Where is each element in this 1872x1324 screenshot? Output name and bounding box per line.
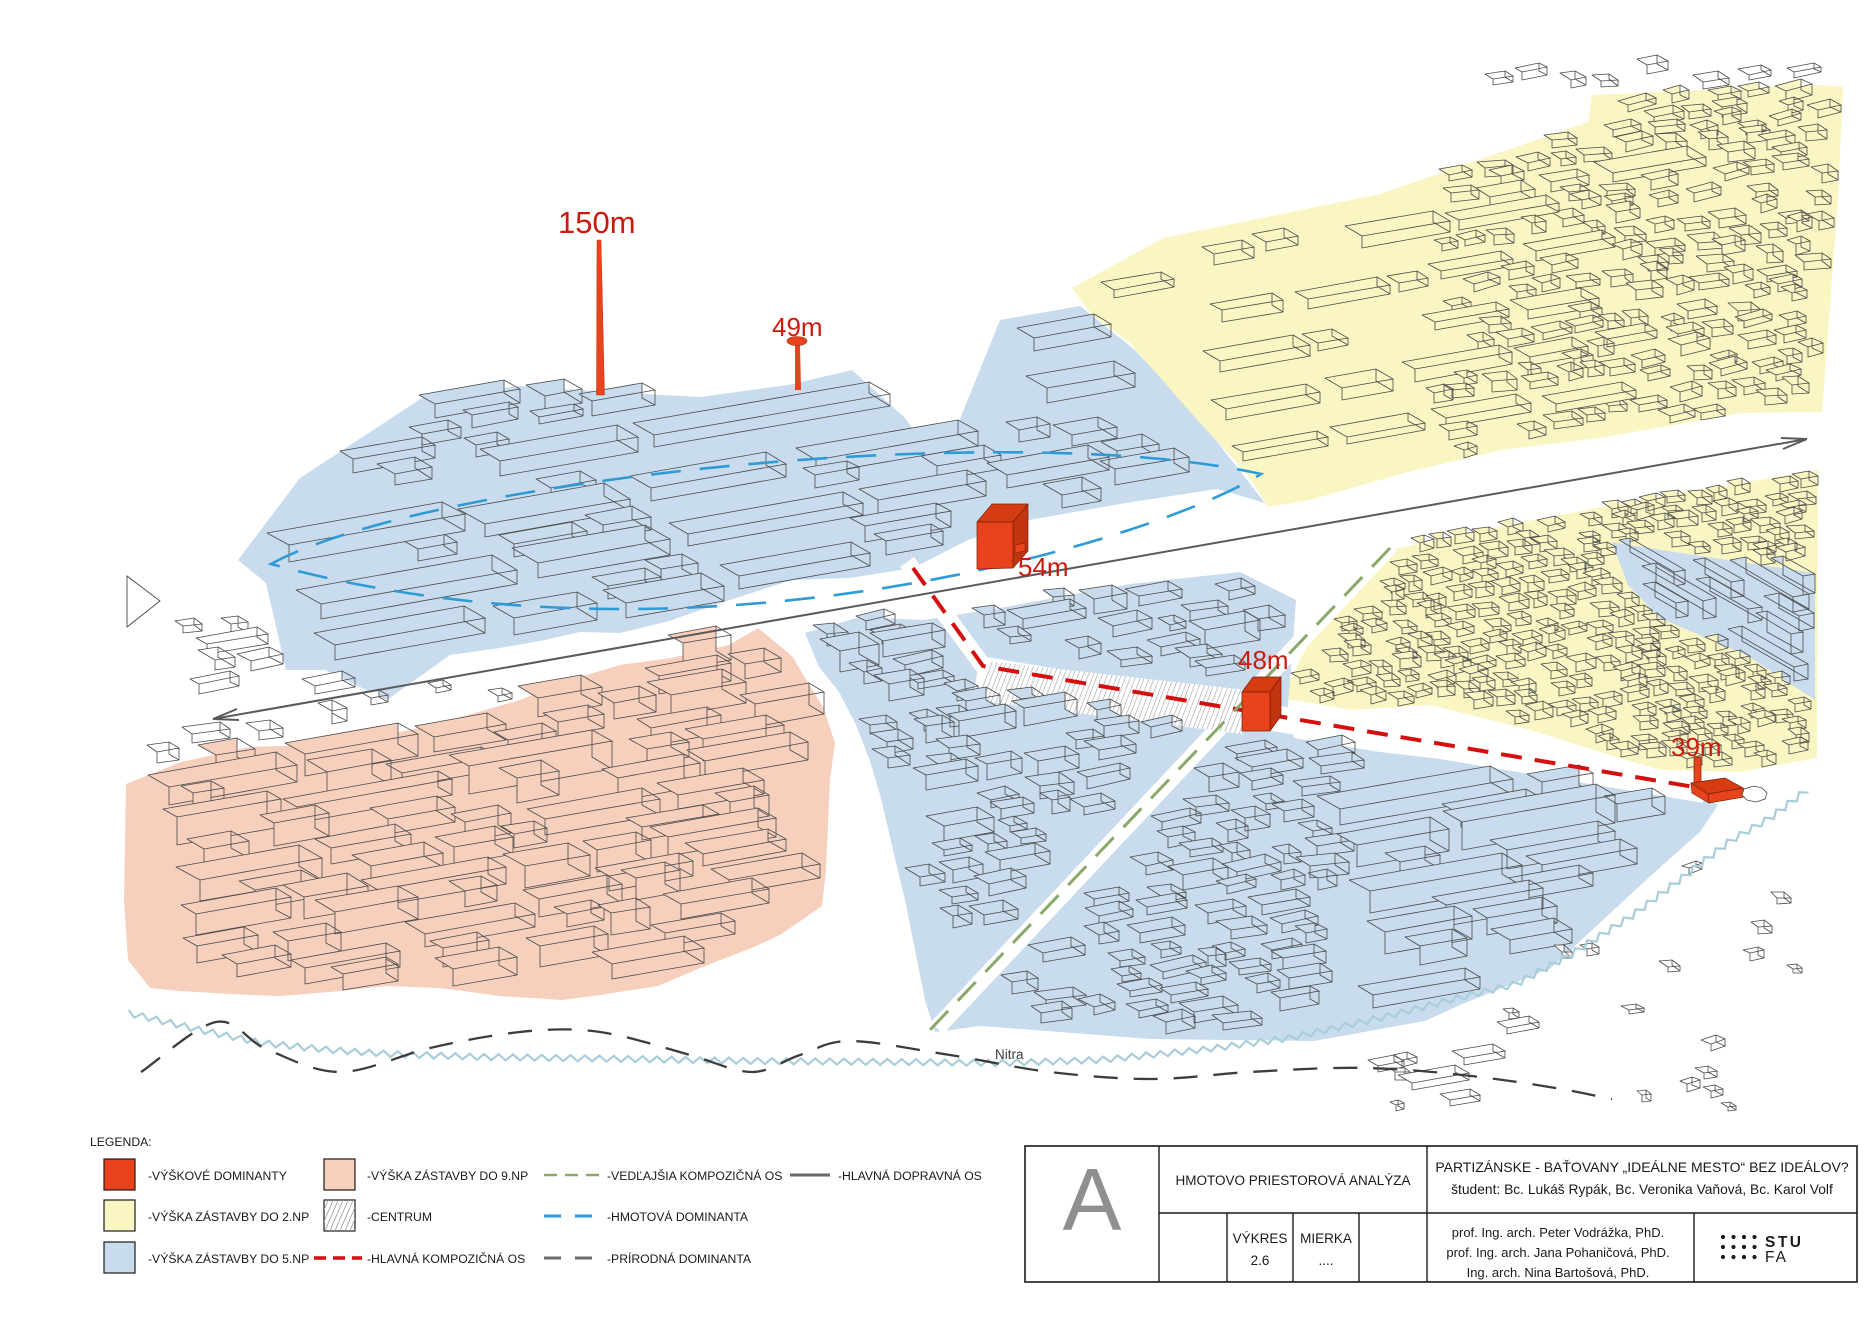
svg-text:-HLAVNÁ DOPRAVNÁ OS: -HLAVNÁ DOPRAVNÁ OS: [838, 1168, 982, 1183]
svg-text:prof. Ing. arch. Jana Pohaničo: prof. Ing. arch. Jana Pohaničová, PhD.: [1446, 1245, 1669, 1260]
svg-text:študent: Bc. Lukáš Rypák, Bc.: študent: Bc. Lukáš Rypák, Bc. Veronika V…: [1451, 1182, 1833, 1197]
svg-text:Ing. arch. Nina Bartošová, PhD: Ing. arch. Nina Bartošová, PhD.: [1467, 1265, 1650, 1280]
svg-text:....: ....: [1318, 1253, 1333, 1268]
svg-text:MIERKA: MIERKA: [1300, 1231, 1352, 1246]
svg-text:-VÝŠKA ZÁSTAVBY DO 5.NP: -VÝŠKA ZÁSTAVBY DO 5.NP: [148, 1251, 309, 1266]
svg-text:VÝKRES: VÝKRES: [1233, 1231, 1288, 1246]
svg-text:-VEDĽAJŠIA KOMPOZIČNÁ OS: -VEDĽAJŠIA KOMPOZIČNÁ OS: [607, 1168, 782, 1183]
svg-text:-CENTRUM: -CENTRUM: [367, 1210, 432, 1224]
svg-text:Nitra: Nitra: [995, 1047, 1024, 1062]
svg-text:2.6: 2.6: [1251, 1253, 1270, 1268]
svg-text:49m: 49m: [772, 312, 823, 342]
svg-text:HMOTOVO PRIESTOROVÁ ANALÝZA: HMOTOVO PRIESTOROVÁ ANALÝZA: [1175, 1173, 1410, 1188]
svg-text:LEGENDA:: LEGENDA:: [90, 1135, 152, 1149]
svg-text:prof. Ing. arch. Peter Vodrážk: prof. Ing. arch. Peter Vodrážka, PhD.: [1452, 1225, 1664, 1240]
svg-text:-VÝŠKA ZÁSTAVBY DO 9.NP: -VÝŠKA ZÁSTAVBY DO 9.NP: [367, 1168, 528, 1183]
svg-text:-HLAVNÁ KOMPOZIČNÁ OS: -HLAVNÁ KOMPOZIČNÁ OS: [367, 1251, 525, 1266]
svg-text:-VÝŠKA ZÁSTAVBY DO 2.NP: -VÝŠKA ZÁSTAVBY DO 2.NP: [148, 1209, 309, 1224]
svg-text:-PRÍRODNÁ DOMINANTA: -PRÍRODNÁ DOMINANTA: [607, 1251, 752, 1266]
svg-text:48m: 48m: [1238, 645, 1289, 675]
svg-text:-HMOTOVÁ DOMINANTA: -HMOTOVÁ DOMINANTA: [607, 1209, 749, 1224]
svg-text:54m: 54m: [1018, 552, 1069, 582]
svg-text:39m: 39m: [1671, 732, 1722, 762]
svg-text:150m: 150m: [558, 205, 636, 240]
svg-text:FA: FA: [1765, 1249, 1788, 1266]
svg-text:-VÝŠKOVÉ DOMINANTY: -VÝŠKOVÉ DOMINANTY: [148, 1168, 287, 1183]
svg-text:PARTIZÁNSKE - BAŤOVANY „IDEÁLN: PARTIZÁNSKE - BAŤOVANY „IDEÁLNE MESTO“ B…: [1435, 1159, 1849, 1175]
svg-text:A: A: [1063, 1150, 1122, 1249]
